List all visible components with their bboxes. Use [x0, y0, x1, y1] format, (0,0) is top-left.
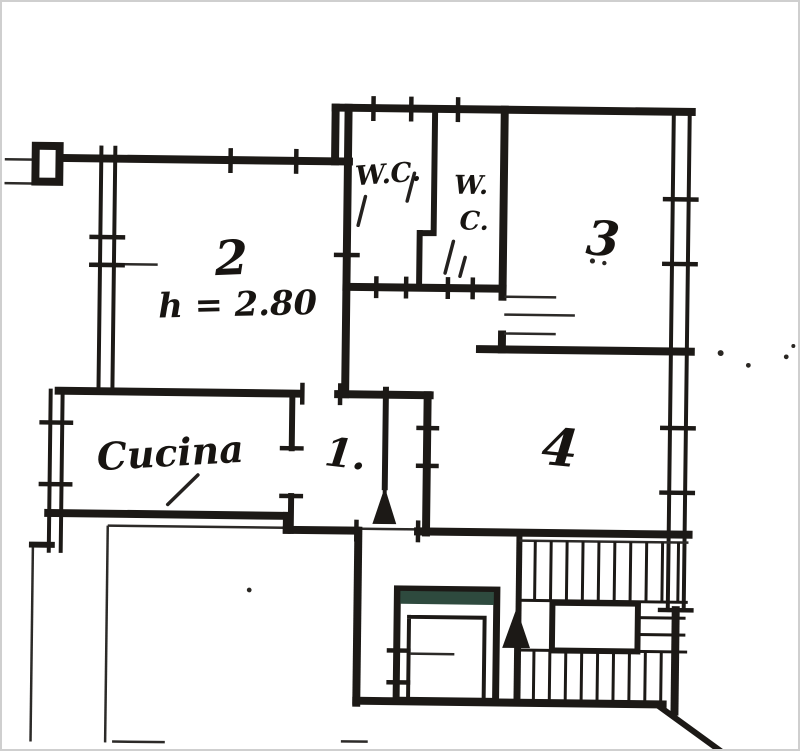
room3-label: 3 [584, 210, 622, 269]
floor-plan-page: 2 h = 2.80 W.C. W. C. 3 Cucina 1. 4 [0, 0, 800, 751]
room1-label: 1. [322, 429, 369, 480]
stair-landing [552, 603, 638, 652]
balcony-parapet [35, 146, 59, 182]
room-labels: 2 h = 2.80 W.C. W. C. 3 Cucina 1. 4 [95, 153, 622, 486]
elevator-shaft [386, 589, 497, 702]
elevator-bar [400, 591, 494, 605]
room4-label: 4 [539, 416, 581, 480]
room2-label: 2 [213, 230, 249, 287]
wc2-label-line2: C. [459, 207, 489, 237]
stairs-up-arrow-icon [502, 608, 531, 698]
kitchen-label: Cucina [96, 427, 245, 479]
wc1-label: W.C. [354, 156, 422, 192]
staircase [517, 535, 688, 704]
ceiling-height-label: h = 2.80 [158, 282, 318, 326]
floor-plan-drawing: 2 h = 2.80 W.C. W. C. 3 Cucina 1. 4 [2, 2, 798, 749]
entry-arrow-icon [372, 459, 397, 524]
wc2-label-line1: W. [454, 171, 488, 201]
